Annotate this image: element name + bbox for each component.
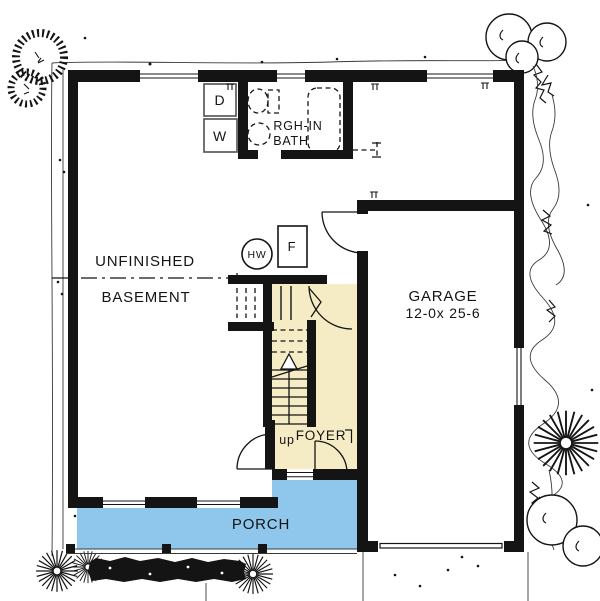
toilet-tank-roughin: [268, 90, 279, 113]
window-garage-right: [514, 348, 524, 405]
floor-plan-canvas: UNFINISHED BASEMENT GARAGE 12-0x 25-6 PO…: [0, 0, 600, 601]
floor-plan-svg: UNFINISHED BASEMENT GARAGE 12-0x 25-6 PO…: [0, 0, 600, 601]
label-washer: W: [213, 128, 227, 144]
window-top-3: [427, 70, 493, 82]
label-hw: HW: [247, 249, 266, 261]
porch-post: [258, 544, 267, 553]
label-unfinished: UNFINISHED: [95, 253, 195, 270]
spiky-tree-top-left: [11, 33, 64, 104]
label-garage: GARAGE: [409, 288, 478, 305]
beam-centerline: [52, 273, 237, 283]
bubble-trees-bottom-right: [527, 482, 600, 566]
label-up: up: [279, 433, 295, 447]
plumbing-roughin-symbol: [353, 142, 381, 158]
door-garage-to-basement: [322, 212, 363, 253]
hedge-strip: [88, 557, 246, 582]
understair-closet: [237, 288, 255, 318]
porch-post: [162, 544, 171, 553]
driveway-lines: [206, 552, 528, 601]
porch-post: [66, 544, 75, 553]
bubble-trees-top-right: [486, 14, 566, 103]
window-top-1: [140, 70, 198, 82]
window-front-1: [103, 497, 145, 508]
sink-roughin: [248, 123, 270, 145]
label-rgh-in: RGH-IN: [273, 119, 322, 133]
window-front-2: [197, 497, 240, 508]
label-foyer: FOYER: [296, 428, 347, 443]
label-basement: BASEMENT: [102, 289, 191, 306]
outlet-symbols: [226, 83, 489, 198]
toilet-roughin: [248, 89, 268, 113]
label-porch: PORCH: [232, 516, 290, 533]
label-bath: BATH: [273, 134, 309, 148]
label-furnace: F: [288, 239, 297, 254]
shrub-band-right: [526, 66, 600, 550]
label-dryer: D: [215, 92, 226, 108]
porch-floor: [77, 480, 357, 549]
garage-door: [380, 544, 502, 549]
label-garage-size: 12-0x 25-6: [406, 305, 481, 321]
window-top-2: [277, 70, 305, 82]
